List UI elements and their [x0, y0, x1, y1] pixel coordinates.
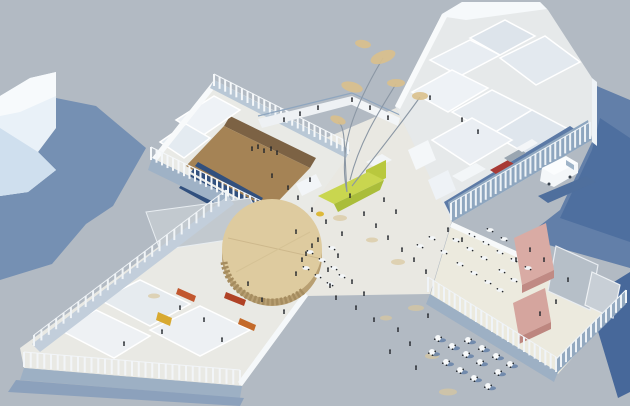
person-seated	[303, 266, 305, 268]
person-head	[251, 146, 253, 148]
person-head	[309, 177, 311, 179]
person-seated	[336, 269, 338, 271]
person-seated	[494, 372, 496, 374]
person-seated	[454, 345, 456, 347]
person-head	[257, 144, 259, 146]
person-seated	[530, 269, 532, 271]
person-seated	[319, 258, 321, 260]
person-head	[375, 223, 377, 225]
person-head	[543, 257, 545, 259]
person-head	[317, 105, 319, 107]
person-head	[329, 283, 331, 285]
person-head	[477, 129, 479, 131]
person-head	[461, 117, 463, 119]
round-table	[429, 349, 435, 355]
person-seated	[474, 380, 476, 382]
person-seated	[483, 241, 485, 243]
person-seated	[484, 386, 486, 388]
person-head	[427, 313, 429, 315]
person-seated	[500, 371, 502, 373]
person-seated	[512, 363, 514, 365]
person-head	[327, 267, 329, 269]
person-seated	[438, 340, 440, 342]
person-head	[295, 271, 297, 273]
round-table	[463, 351, 469, 357]
person-seated	[332, 285, 334, 287]
person-head	[261, 297, 263, 299]
person-head	[529, 247, 531, 249]
person-head	[263, 148, 265, 150]
person-seated	[452, 348, 454, 350]
ground-patch	[408, 305, 424, 311]
person-head	[247, 281, 249, 283]
person-head	[425, 269, 427, 271]
person-seated	[468, 342, 470, 344]
person-head	[297, 195, 299, 197]
person-seated	[440, 337, 442, 339]
person-head	[555, 299, 557, 301]
person-head	[221, 337, 223, 339]
person-seated	[492, 356, 494, 358]
ground-patch	[366, 238, 378, 243]
person-seated	[417, 244, 419, 246]
person-seated	[504, 272, 506, 274]
person-seated	[498, 355, 500, 357]
person-seated	[474, 236, 476, 238]
person-seated	[497, 250, 499, 252]
round-table	[507, 361, 513, 367]
person-head	[287, 185, 289, 187]
person-head	[539, 311, 541, 313]
person-seated	[329, 246, 331, 248]
delivery-van-wheel	[548, 183, 551, 186]
person-head	[515, 257, 517, 259]
round-table	[465, 337, 471, 343]
round-table	[493, 353, 499, 359]
person-seated	[428, 352, 430, 354]
ground-patch	[391, 259, 405, 265]
person-head	[337, 253, 339, 255]
round-table	[457, 367, 463, 373]
person-seated	[457, 262, 459, 264]
person-seated	[320, 277, 322, 279]
person-head	[387, 235, 389, 237]
person-head	[271, 173, 273, 175]
person-seated	[339, 274, 341, 276]
person-seated	[510, 366, 512, 368]
person-head	[429, 95, 431, 97]
person-seated	[460, 372, 462, 374]
person-head	[299, 111, 301, 113]
delivery-van-wheel	[569, 176, 572, 179]
person-seated	[501, 237, 503, 239]
person-seated	[453, 238, 455, 240]
person-seated	[464, 340, 466, 342]
person-seated	[456, 370, 458, 372]
person-seated	[498, 374, 500, 376]
person-seated	[448, 346, 450, 348]
person-seated	[462, 265, 464, 267]
person-seated	[308, 269, 310, 271]
person-head	[317, 237, 319, 239]
person-seated	[467, 247, 469, 249]
person-seated	[476, 274, 478, 276]
round-table	[495, 369, 501, 375]
person-head	[283, 309, 285, 311]
ground-patch	[148, 294, 160, 299]
person-head	[447, 227, 449, 229]
person-head	[395, 209, 397, 211]
person-seated	[468, 353, 470, 355]
person-head	[311, 207, 313, 209]
plaza-tree-foliage	[412, 92, 428, 100]
round-table	[443, 359, 449, 365]
round-table	[435, 335, 441, 341]
person-seated	[511, 278, 513, 280]
person-seated	[434, 338, 436, 340]
person-head	[295, 229, 297, 231]
person-seated	[488, 244, 490, 246]
person-seated	[488, 388, 490, 390]
person-seated	[422, 247, 424, 249]
person-seated	[506, 364, 508, 366]
person-head	[351, 97, 353, 99]
person-head	[397, 327, 399, 329]
person-head	[203, 317, 205, 319]
person-seated	[470, 378, 472, 380]
person-seated	[331, 266, 333, 268]
person-head	[461, 237, 463, 239]
person-head	[305, 251, 307, 253]
person-head	[311, 243, 313, 245]
person-seated	[462, 354, 464, 356]
person-seated	[470, 339, 472, 341]
person-head	[369, 105, 371, 107]
person-seated	[434, 239, 436, 241]
person-seated	[442, 362, 444, 364]
person-seated	[344, 277, 346, 279]
person-seated	[312, 253, 314, 255]
person-head	[373, 317, 375, 319]
person-seated	[458, 241, 460, 243]
round-table	[479, 345, 485, 351]
person-seated	[480, 364, 482, 366]
person-seated	[511, 258, 513, 260]
person-seated	[446, 364, 448, 366]
person-head	[349, 193, 351, 195]
round-table	[471, 375, 477, 381]
person-seated	[485, 280, 487, 282]
person-seated	[434, 351, 436, 353]
plaza-tree-foliage	[387, 79, 405, 87]
person-seated	[497, 288, 499, 290]
person-seated	[502, 291, 504, 293]
person-seated	[516, 281, 518, 283]
person-seated	[525, 266, 527, 268]
person-seated	[487, 228, 489, 230]
person-seated	[432, 354, 434, 356]
person-seated	[441, 250, 443, 252]
person-seated	[492, 231, 494, 233]
person-seated	[462, 369, 464, 371]
person-seated	[472, 250, 474, 252]
person-seated	[482, 350, 484, 352]
person-head	[325, 219, 327, 221]
person-head	[161, 329, 163, 331]
person-seated	[471, 271, 473, 273]
person-head	[409, 341, 411, 343]
person-head	[123, 341, 125, 343]
person-seated	[307, 250, 309, 252]
person-seated	[448, 361, 450, 363]
person-seated	[499, 269, 501, 271]
round-table	[449, 343, 455, 349]
person-head	[413, 257, 415, 259]
person-seated	[324, 261, 326, 263]
person-seated	[502, 253, 504, 255]
ne-wing-outer-wall-east	[592, 78, 597, 146]
person-seated	[327, 282, 329, 284]
person-head	[383, 197, 385, 199]
person-head	[301, 257, 303, 259]
person-head	[276, 150, 278, 152]
person-head	[401, 247, 403, 249]
person-head	[341, 231, 343, 233]
person-seated	[478, 348, 480, 350]
ground-patch	[380, 316, 392, 321]
person-head	[567, 277, 569, 279]
ground-patch	[439, 389, 457, 396]
person-seated	[315, 274, 317, 276]
person-head	[389, 349, 391, 351]
person-seated	[469, 233, 471, 235]
person-seated	[476, 362, 478, 364]
person-seated	[334, 249, 336, 251]
person-seated	[482, 361, 484, 363]
round-table	[477, 359, 483, 365]
person-head	[335, 295, 337, 297]
person-seated	[484, 347, 486, 349]
person-head	[351, 279, 353, 281]
person-seated	[486, 259, 488, 261]
yellow-marker	[316, 212, 324, 217]
person-seated	[429, 236, 431, 238]
render-canvas	[0, 0, 630, 406]
person-head	[179, 305, 181, 307]
person-seated	[466, 356, 468, 358]
person-seated	[506, 240, 508, 242]
amphitheatre-deck	[222, 199, 322, 299]
person-head	[363, 211, 365, 213]
ground-patch	[333, 215, 347, 221]
person-head	[387, 115, 389, 117]
person-head	[355, 305, 357, 307]
person-seated	[490, 283, 492, 285]
person-seated	[476, 377, 478, 379]
person-head	[270, 146, 272, 148]
person-head	[363, 291, 365, 293]
round-table	[485, 383, 491, 389]
person-seated	[481, 256, 483, 258]
person-seated	[490, 385, 492, 387]
person-seated	[446, 253, 448, 255]
person-head	[415, 365, 417, 367]
person-seated	[496, 358, 498, 360]
architectural-render	[0, 0, 630, 406]
person-head	[283, 117, 285, 119]
